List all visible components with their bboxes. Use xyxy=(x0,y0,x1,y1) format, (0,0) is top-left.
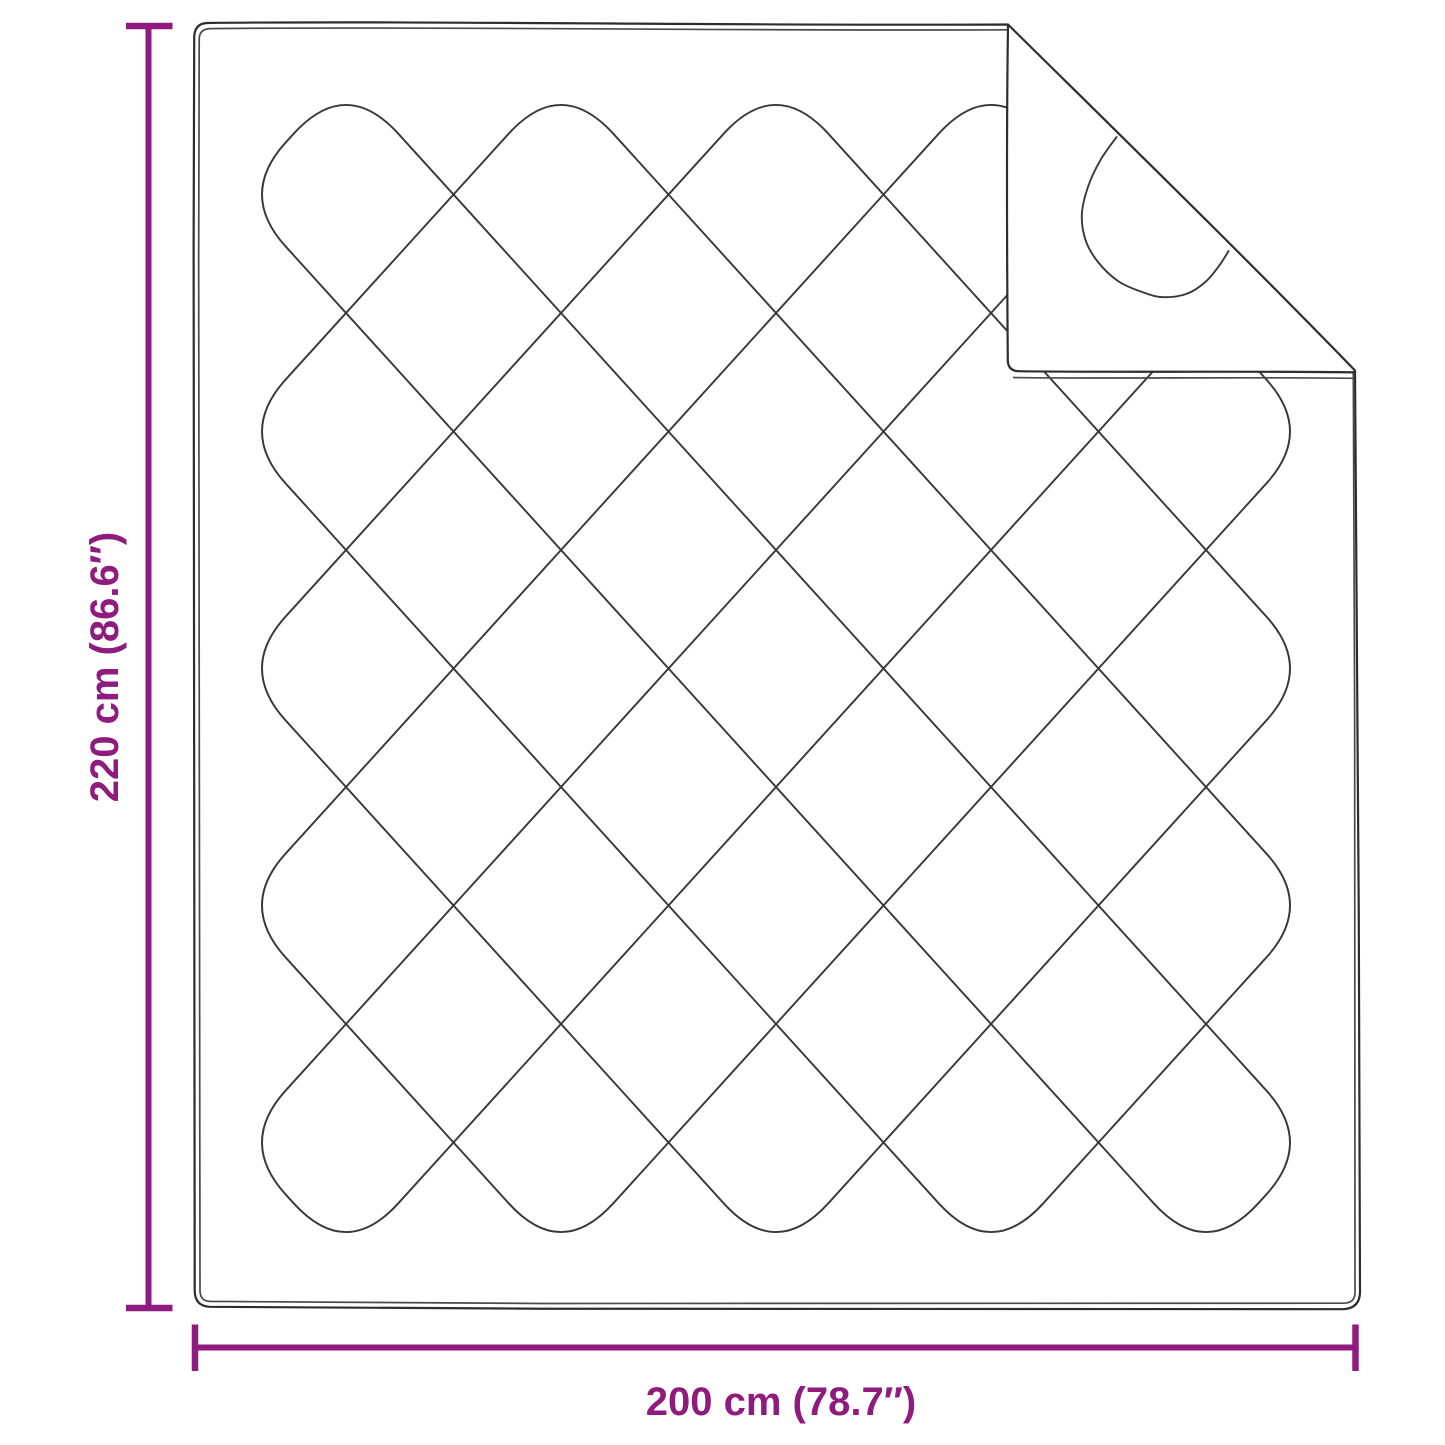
svg-text:220 cm (86.6″): 220 cm (86.6″) xyxy=(83,532,127,802)
svg-text:200 cm (78.7″): 200 cm (78.7″) xyxy=(646,1380,916,1424)
